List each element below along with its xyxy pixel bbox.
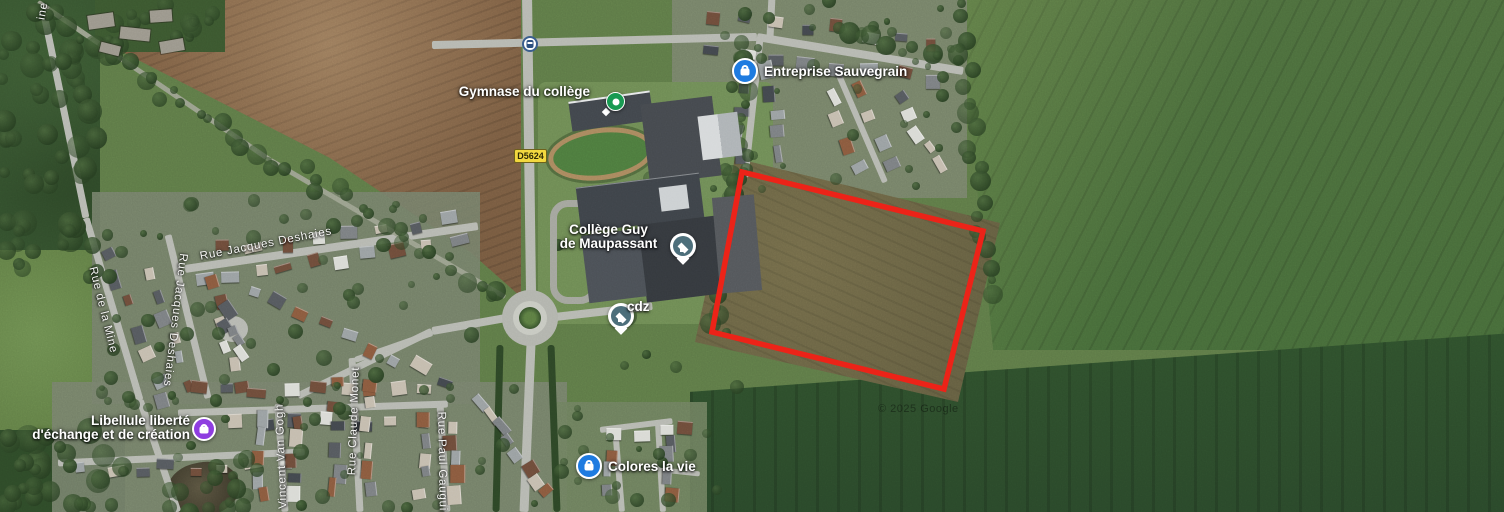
tree (830, 173, 842, 185)
briefcase-icon (585, 463, 594, 470)
house (360, 245, 376, 258)
house (827, 88, 842, 107)
tree (227, 479, 246, 498)
tree (970, 171, 991, 192)
tree (606, 433, 614, 441)
house (364, 442, 373, 459)
tree (368, 367, 384, 383)
poi-label-cdz[interactable]: cdz (627, 299, 650, 314)
tree (300, 423, 308, 431)
house (123, 294, 134, 306)
tree (152, 92, 167, 107)
tree (809, 24, 816, 31)
house (156, 459, 173, 470)
tree (25, 477, 43, 495)
tree (445, 265, 457, 277)
poi-label-colores[interactable]: Colores la vie (608, 459, 696, 474)
house (191, 380, 208, 394)
green-poi-icon (606, 92, 625, 111)
tree (378, 218, 395, 235)
house (421, 466, 430, 477)
tree (509, 384, 519, 394)
tree (24, 174, 44, 194)
tree (141, 314, 154, 327)
house (359, 415, 371, 431)
tree (375, 354, 384, 363)
tree (933, 51, 942, 60)
tree (965, 62, 981, 78)
tree (84, 237, 101, 254)
tree (74, 497, 87, 510)
tree (822, 0, 837, 8)
tree (742, 149, 755, 162)
tree (288, 324, 303, 339)
house (341, 328, 359, 343)
house (450, 233, 470, 248)
tree (758, 185, 766, 193)
tree (248, 194, 260, 206)
tree (912, 182, 920, 190)
tree (105, 498, 118, 511)
tree (653, 448, 664, 459)
tree (74, 157, 97, 180)
tree (876, 36, 896, 56)
house (416, 413, 429, 429)
poi-label-college[interactable]: Collège Guy de Maupassant (546, 223, 671, 251)
house (412, 488, 426, 500)
house (361, 461, 373, 480)
tree (316, 350, 332, 366)
tree (207, 470, 223, 486)
tree (162, 500, 177, 512)
tree (306, 183, 323, 200)
house (268, 291, 287, 309)
tree (446, 383, 454, 391)
tree (955, 79, 971, 95)
tree (175, 98, 185, 108)
tree (612, 481, 621, 490)
tree (475, 465, 485, 475)
tree (172, 397, 179, 404)
tree (478, 457, 486, 465)
house (895, 33, 907, 42)
tree (212, 227, 219, 234)
tree (235, 498, 252, 512)
house (634, 430, 650, 441)
tree (642, 350, 650, 358)
tree (376, 238, 390, 252)
tree (297, 283, 307, 293)
tree (293, 444, 309, 460)
tree (399, 301, 408, 310)
tree (670, 361, 682, 373)
tree (263, 160, 279, 176)
tree (303, 397, 313, 407)
house (770, 125, 785, 138)
tree (182, 18, 202, 38)
house (706, 11, 720, 25)
tree (560, 458, 568, 466)
tree (382, 500, 395, 512)
tree (978, 241, 995, 258)
tree (86, 469, 110, 493)
poi-label-entreprise[interactable]: Entreprise Sauvegrain (764, 64, 907, 79)
tree (763, 12, 775, 24)
tree (225, 497, 235, 507)
tree (173, 453, 182, 462)
tree (937, 5, 944, 12)
tree (171, 483, 189, 501)
house (247, 387, 266, 398)
tree (905, 165, 913, 173)
tree (143, 403, 153, 413)
tree (180, 503, 199, 512)
tree (77, 99, 102, 124)
ruin (150, 9, 173, 23)
house (421, 433, 431, 449)
poi-label-gymnase[interactable]: Gymnase du collège (459, 84, 590, 99)
tree (25, 244, 40, 259)
tree (318, 255, 328, 265)
tree (210, 394, 223, 407)
tree (315, 489, 330, 504)
tree (486, 281, 506, 301)
tree (63, 459, 77, 473)
tree (734, 35, 749, 50)
tree (296, 500, 307, 511)
tree (56, 16, 77, 37)
house (828, 110, 844, 128)
tree (0, 241, 16, 260)
tree (214, 113, 232, 131)
tree (925, 63, 931, 69)
tree (102, 269, 117, 284)
tree (351, 215, 363, 227)
tree (988, 276, 996, 284)
house (451, 451, 460, 466)
libellule-marker-pin[interactable] (192, 417, 216, 441)
roundabout-island (519, 307, 541, 329)
tree (186, 441, 195, 450)
house (365, 482, 378, 497)
tree (977, 195, 993, 211)
tree (935, 144, 942, 151)
house (219, 340, 231, 354)
house (329, 442, 341, 457)
tree (912, 58, 919, 65)
tree (554, 464, 570, 480)
tree (804, 4, 815, 15)
tree (774, 88, 780, 94)
house (851, 159, 869, 175)
house (249, 286, 262, 298)
tree (246, 338, 257, 349)
tree (739, 81, 758, 100)
tree (936, 89, 950, 103)
house (676, 420, 693, 435)
tree (42, 57, 56, 71)
school-parking-east (712, 194, 762, 293)
house (259, 487, 270, 502)
house (228, 413, 243, 428)
tree (962, 151, 975, 164)
tree (572, 411, 583, 422)
briefcase-icon (741, 68, 750, 75)
tree (154, 342, 164, 352)
house (288, 474, 301, 484)
tree (204, 16, 214, 26)
tree (37, 124, 58, 145)
tree (847, 129, 859, 141)
house (256, 264, 268, 276)
house (191, 468, 202, 476)
tree (267, 363, 280, 376)
tree (202, 502, 216, 512)
house (364, 396, 375, 408)
house (924, 141, 936, 154)
house (333, 256, 349, 271)
house (660, 425, 673, 435)
colores-marker-pin[interactable] (576, 453, 602, 479)
tree (0, 167, 10, 178)
tree (55, 150, 69, 164)
tree (86, 127, 108, 149)
house (410, 355, 433, 376)
house (145, 267, 156, 281)
tree (76, 35, 84, 43)
tree (205, 301, 217, 313)
tree (531, 500, 538, 507)
shop-icon (200, 426, 209, 433)
house (883, 156, 901, 172)
tree (605, 489, 620, 504)
tree (300, 209, 312, 221)
tree (900, 120, 908, 128)
entreprise-marker-pin[interactable] (732, 58, 758, 84)
house (932, 155, 947, 174)
tree (389, 205, 397, 213)
tree (340, 188, 353, 201)
tree (104, 371, 118, 385)
tree (983, 260, 1000, 277)
house (449, 422, 458, 435)
tree (906, 41, 918, 53)
house (204, 274, 220, 290)
tree (112, 314, 121, 323)
ruin (159, 38, 185, 54)
house (274, 262, 293, 274)
tree (104, 397, 112, 405)
tree (140, 230, 147, 237)
tree (63, 224, 76, 237)
tree (951, 122, 962, 133)
tree (5, 130, 22, 147)
tree (702, 429, 711, 438)
tree (636, 446, 642, 452)
house (256, 427, 266, 445)
house (386, 354, 399, 367)
tree (712, 485, 722, 495)
tree (309, 413, 322, 426)
tree (0, 110, 16, 132)
tree (57, 239, 69, 251)
poi-label-libellule[interactable]: Libellule liberté d'échange et de créati… (32, 414, 190, 441)
route-badge: D5624 (514, 149, 547, 163)
house (221, 272, 239, 283)
tree (190, 302, 205, 317)
street-label-paul-gauguin: Rue Paul Gauguin (435, 412, 449, 512)
tree (122, 53, 138, 69)
tree (948, 44, 968, 64)
tree (347, 296, 360, 309)
house (446, 485, 461, 505)
satellite-map-canvas[interactable]: Rue Jacques Deshaies Rue Jacques Deshaie… (0, 0, 1504, 512)
tree (983, 285, 1003, 305)
house (309, 381, 326, 394)
tree (620, 361, 629, 370)
tree (352, 283, 365, 296)
tree (710, 185, 717, 192)
map-attribution: © 2025 Google (878, 403, 959, 415)
tree (630, 493, 644, 507)
tree (496, 438, 510, 452)
tree (780, 163, 786, 169)
house (450, 465, 465, 483)
tree (968, 118, 986, 136)
house (874, 134, 892, 152)
college-building-wing (659, 184, 690, 211)
tree (55, 53, 72, 70)
tree (102, 229, 114, 241)
house (284, 383, 299, 397)
house (440, 209, 458, 224)
tree (1, 31, 21, 51)
house (894, 90, 909, 104)
tree (722, 328, 730, 336)
house (907, 126, 925, 146)
house (384, 416, 396, 425)
tree (940, 27, 952, 39)
tree (115, 246, 127, 258)
house (136, 468, 149, 477)
tree (401, 502, 413, 512)
tree (661, 493, 675, 507)
tree (212, 327, 225, 340)
house (130, 325, 146, 345)
tree (14, 459, 26, 471)
tree (422, 245, 435, 258)
white-building (697, 112, 742, 161)
tree (0, 73, 8, 85)
tree (399, 232, 409, 242)
tree (51, 90, 68, 107)
tree (279, 214, 289, 224)
tree (446, 394, 455, 403)
tree (971, 211, 982, 222)
tree (923, 111, 930, 118)
tree (884, 18, 890, 24)
house (340, 226, 358, 239)
tree (953, 9, 967, 23)
tree (13, 225, 25, 237)
tree (464, 327, 479, 342)
bus-icon (527, 40, 534, 48)
tree (419, 214, 428, 223)
house (702, 45, 718, 56)
tree (558, 425, 572, 439)
tree (445, 252, 454, 261)
house (331, 421, 345, 430)
tree (937, 71, 950, 84)
house (771, 110, 786, 120)
tree (14, 260, 31, 277)
tree (157, 233, 164, 240)
tree (700, 313, 722, 335)
house (390, 380, 407, 396)
house (291, 306, 308, 322)
tree (730, 380, 744, 394)
tree (756, 53, 767, 64)
house (257, 410, 268, 428)
house (860, 109, 875, 122)
tree (300, 159, 315, 174)
tree (433, 273, 440, 280)
tree (334, 382, 341, 389)
tree (0, 429, 17, 446)
house (773, 145, 783, 163)
house (153, 290, 165, 305)
tree (957, 0, 966, 8)
tree (408, 281, 415, 288)
tree (221, 415, 229, 423)
tree (458, 273, 478, 293)
house (319, 316, 333, 328)
house (762, 86, 775, 102)
